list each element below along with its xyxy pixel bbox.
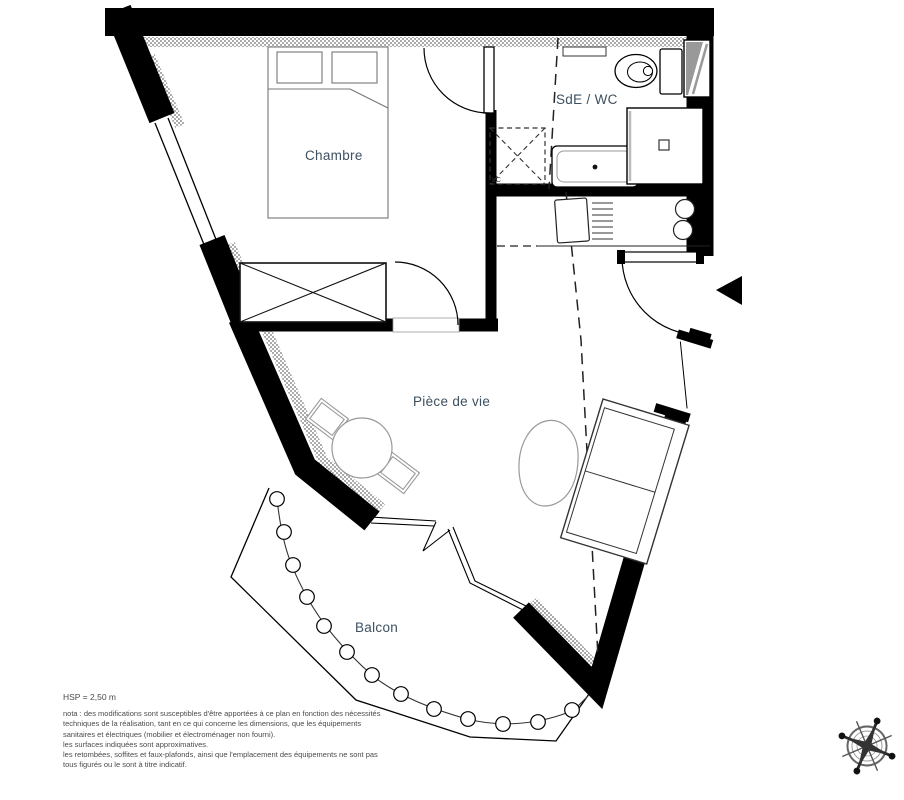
bedroom-door xyxy=(393,262,459,332)
pillow xyxy=(277,52,322,83)
plan-notes: HSP = 2,50 m nota : des modifications so… xyxy=(63,692,393,771)
wall-insulation-hatching xyxy=(122,42,688,667)
ceiling-height-note: HSP = 2,50 m xyxy=(63,692,393,702)
toilet xyxy=(615,49,682,94)
entrance-door xyxy=(617,250,704,335)
sofa xyxy=(561,399,689,564)
bathroom-shelf xyxy=(563,47,606,56)
kitchen-counter xyxy=(537,198,710,246)
floor-plan-page: LC xyxy=(0,0,904,800)
room-label-bedroom: Chambre xyxy=(305,148,363,163)
wardrobe xyxy=(240,263,386,322)
room-label-living: Pièce de vie xyxy=(413,394,490,409)
kitchen-sink xyxy=(555,198,590,243)
entrance-arrow-icon xyxy=(716,276,742,305)
washer-label: LC xyxy=(492,177,501,184)
technical-shaft xyxy=(684,40,710,97)
room-label-balcony: Balcon xyxy=(355,620,398,635)
washing-machine-slot xyxy=(490,128,545,184)
note-line: tous figurés ou le sont à titre indicati… xyxy=(63,760,393,770)
shower xyxy=(627,108,703,184)
floor-plan-drawing: LC xyxy=(0,0,904,800)
bed xyxy=(268,47,388,218)
note-line: techniques de la réalisation, tant en ce… xyxy=(63,719,393,729)
dashed-boundary-lines xyxy=(497,38,598,657)
window-right xyxy=(652,329,715,423)
cooktop-burner xyxy=(674,221,693,240)
note-line: les retombées, soffites et faux-plafonds… xyxy=(63,750,393,760)
walls xyxy=(105,8,714,688)
bathroom-sink xyxy=(552,146,638,187)
sliding-bay-window xyxy=(370,517,526,610)
pouf xyxy=(519,420,578,506)
compass-rose-icon xyxy=(827,706,904,785)
window-left xyxy=(155,118,219,252)
pillow xyxy=(332,52,377,83)
note-line: les surfaces indiquées sont approximativ… xyxy=(63,740,393,750)
shower-drain xyxy=(659,140,669,150)
room-label-bathroom: SdE / WC xyxy=(556,92,618,107)
note-line: nota : des modifications sont susceptibl… xyxy=(63,709,393,719)
dish-drainer xyxy=(592,203,613,239)
cooktop-burner xyxy=(676,200,695,219)
note-line: sanitaires et électriques (mobilier et é… xyxy=(63,730,393,740)
bathroom-door xyxy=(424,47,494,113)
